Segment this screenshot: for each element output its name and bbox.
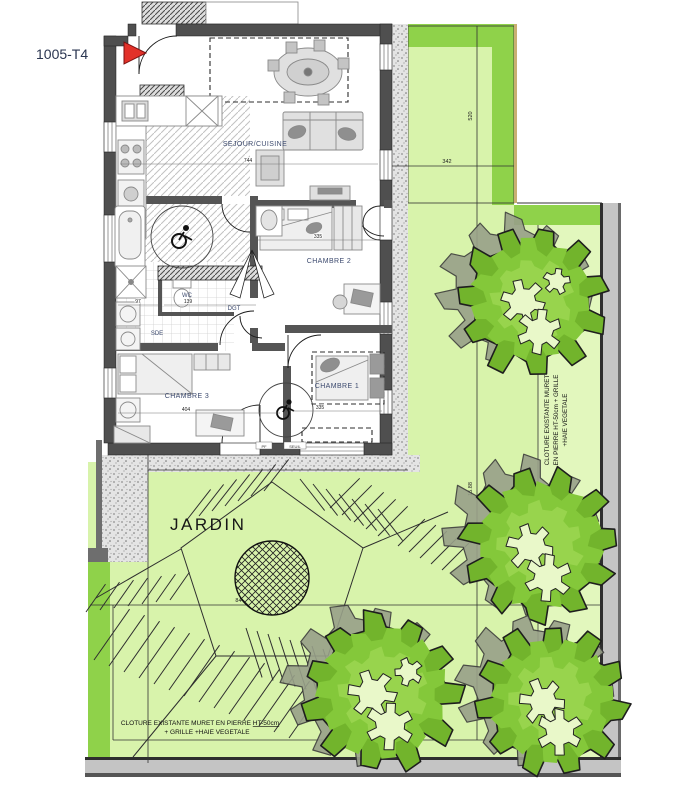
- apartment: 744 335 97 139 404 335 PF SEUIL SEJOUR/C…: [104, 2, 392, 455]
- dim-chambre3: 404: [182, 407, 191, 413]
- garden-crosshatch-circle: [235, 541, 309, 615]
- dim-sejour: 744: [244, 158, 253, 164]
- fence-note-bottom-prefix: CLOTURE EXISTANTE MURET EN PIERRE: [121, 720, 253, 727]
- room-label-dgt: DGT: [228, 306, 241, 312]
- fence-note-right-line2: EN PIERRE HT-50cm + GRILLE: [553, 375, 560, 466]
- floor-plan-page: 342 520 844 15.88 JARDIN CLOTURE EXISTAN…: [0, 0, 687, 800]
- room-label-wc: WC: [182, 293, 193, 299]
- dim-wc: 139: [184, 299, 193, 305]
- room-label-sde: SDE: [151, 331, 163, 337]
- floor-plan-drawing: 342 520 844 15.88 JARDIN CLOTURE EXISTAN…: [0, 0, 687, 800]
- dim-chambre1: 335: [316, 405, 325, 411]
- unit-marker: 1005-T4: [36, 42, 146, 64]
- fence-note-bottom-line1: CLOTURE EXISTANTE MURET EN PIERRE HT-50c…: [121, 720, 279, 727]
- garden-label: JARDIN: [170, 515, 246, 534]
- door-code-seuil: SEUIL: [289, 444, 301, 449]
- room-label-chambre3: CHAMBRE 3: [165, 393, 209, 400]
- fence-note-bottom-underlined: HT-50cm: [253, 720, 279, 727]
- room-label-sejour: SEJOUR/CUISINE: [223, 141, 287, 148]
- dim-garden-upper-width: 342: [442, 159, 451, 165]
- room-label-chambre1: CHAMBRE 1: [315, 383, 359, 390]
- unit-label: 1005-T4: [36, 46, 88, 62]
- fence-note-bottom-line2: + GRILLE +HAIE VEGETALE: [164, 729, 250, 736]
- dim-chambre2: 335: [314, 234, 323, 240]
- dim-garden-upper-height: 520: [468, 111, 474, 120]
- dim-sde: 97: [135, 299, 141, 305]
- room-label-chambre2: CHAMBRE 2: [307, 258, 351, 265]
- fence-note-right-line3: +HAIE VEGETALE: [562, 394, 569, 447]
- fence-note-right-line1: CLOTURE EXISTANTE MURET: [544, 375, 551, 466]
- door-code-pf: PF: [261, 444, 267, 449]
